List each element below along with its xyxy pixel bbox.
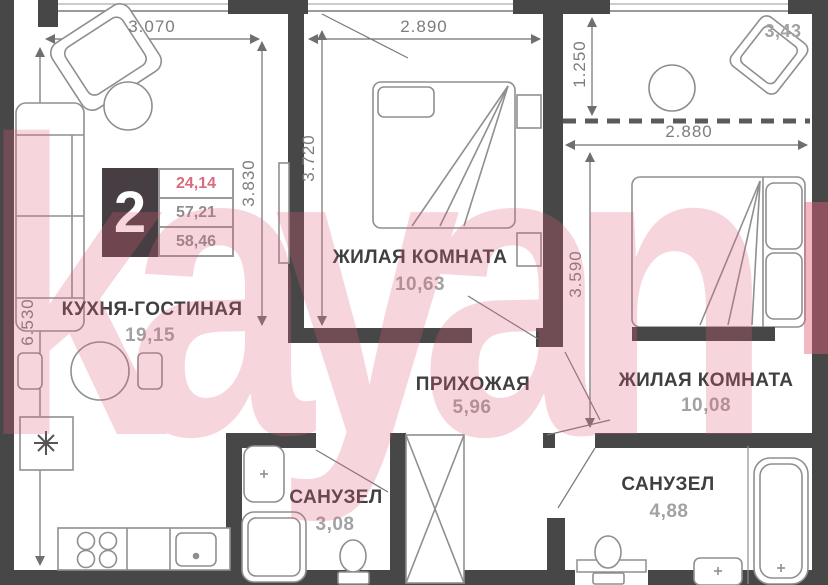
room-label-bathroom-1: САНУЗЕЛ [266,487,406,509]
nightstand [517,95,541,128]
bathtub-2 [754,458,808,584]
room-label-bathroom-2: САНУЗЕЛ [598,474,738,496]
areas-table: 24,14 57,21 58,46 [158,168,234,257]
usable-area-value: 57,21 [160,199,232,228]
room-label-kitchen-living: КУХНЯ-ГОСТИНАЯ [32,299,272,321]
room-area-bedroom-1: 10,63 [380,275,460,295]
floor-plan: 2 24,14 57,21 58,46 КУХНЯ-ГОСТИНАЯ 19,15… [0,0,828,585]
bed-2 [632,177,805,341]
room-area-hallway: 5,96 [432,398,512,418]
dim-kitchen-width: 3.070 [102,17,202,37]
room-area-bedroom-2: 10,08 [666,396,746,416]
door-leaf [279,163,289,263]
kitchen-sink [176,533,216,566]
rooms-count-badge: 2 [102,168,158,257]
dim-bedroom2-width: 2.880 [639,122,739,142]
ventilation-shaft [20,417,73,470]
total-area-value: 58,46 [160,228,232,255]
toilet-2 [593,536,624,584]
toilet-1 [338,540,369,584]
bed-1 [373,82,515,228]
room-area-bathroom-1: 3,08 [295,515,375,535]
dim-left-total-height: 6.530 [18,272,38,372]
dim-loggia-depth: 1.250 [570,14,590,114]
room-area-bathroom-2: 4,88 [629,502,709,522]
room-area-kitchen-living: 19,15 [110,326,190,346]
coffee-table [104,82,152,130]
dim-kitchen-height: 3.830 [239,133,259,233]
bathroom2-sink [694,558,742,585]
wardrobe [406,435,464,583]
room-area-loggia: 3,43 [743,21,823,41]
living-area-value: 24,14 [160,170,232,199]
loggia-table [649,65,695,111]
dim-bedroom1-width: 2.890 [374,17,474,37]
windows [58,4,788,11]
room-label-bedroom-2: ЖИЛАЯ КОМНАТА [586,370,826,392]
kitchen-counter [58,528,230,570]
dim-bedroom2-height: 3.590 [566,224,586,324]
room-label-hallway: ПРИХОЖАЯ [383,374,563,396]
dim-bedroom1-height: 3.720 [299,108,319,208]
room-label-bedroom-1: ЖИЛАЯ КОМНАТА [300,247,540,269]
